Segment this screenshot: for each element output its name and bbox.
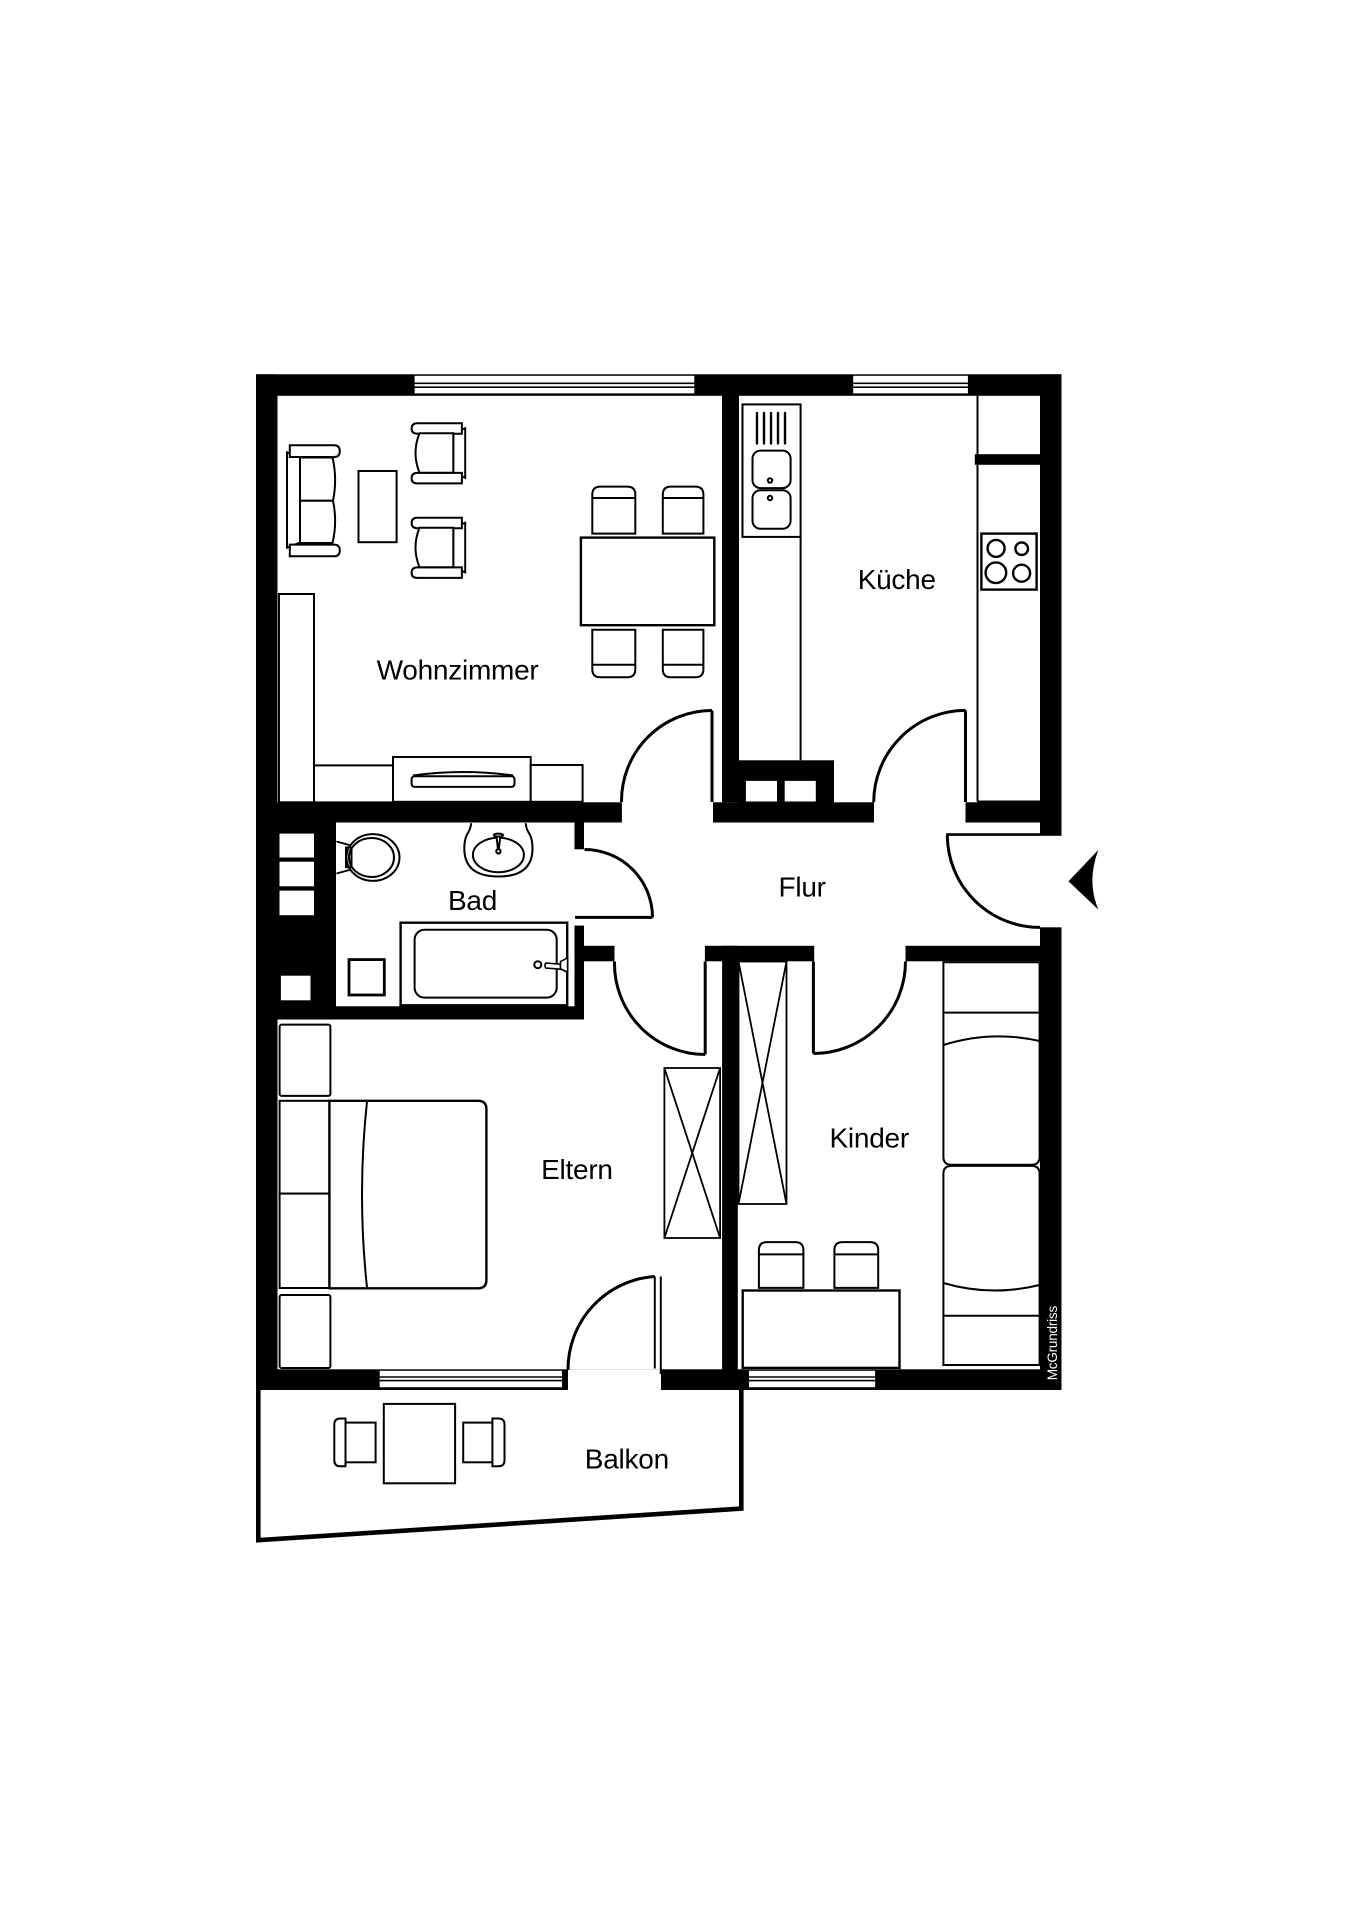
svg-text:Wohnzimmer: Wohnzimmer: [377, 654, 539, 685]
svg-text:Bad: Bad: [448, 885, 497, 916]
svg-text:Balkon: Balkon: [585, 1444, 669, 1475]
svg-text:Eltern: Eltern: [541, 1154, 613, 1185]
svg-text:McGrundriss: McGrundriss: [1045, 1306, 1060, 1381]
svg-text:Flur: Flur: [779, 871, 826, 902]
svg-text:Kinder: Kinder: [830, 1123, 909, 1154]
svg-text:Küche: Küche: [858, 564, 936, 595]
